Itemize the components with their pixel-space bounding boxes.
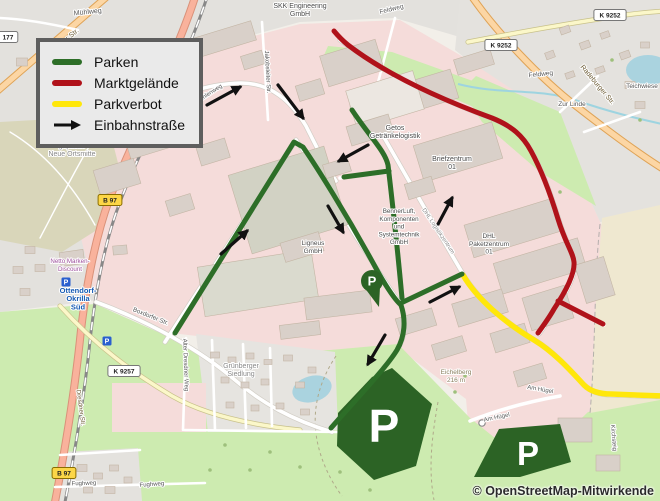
- svg-text:B 97: B 97: [103, 198, 117, 205]
- one-way-arrow-icon: [52, 118, 82, 132]
- svg-text:177: 177: [3, 35, 14, 42]
- svg-text:Teichwiese: Teichwiese: [626, 83, 658, 90]
- svg-text:K 9257: K 9257: [114, 369, 135, 376]
- svg-text:K 9252: K 9252: [491, 43, 512, 50]
- legend-row-parken: Parken: [52, 51, 185, 72]
- legend-row-parkverbot: Parkverbot: [52, 93, 185, 114]
- map-screenshot: PP PPP 177K 9252K 9252K 9257B 97B 97SKK …: [0, 0, 660, 501]
- svg-text:LigneusGmbH: LigneusGmbH: [302, 240, 326, 255]
- legend: Parken Marktgelände Parkverbot Einbahnst…: [36, 38, 203, 148]
- legend-row-marktgelaende: Marktgelände: [52, 72, 185, 93]
- legend-label-parkverbot: Parkverbot: [94, 96, 162, 112]
- legend-row-einbahnstrasse: Einbahnstraße: [52, 114, 185, 135]
- svg-text:P: P: [369, 400, 400, 452]
- osm-attribution: © OpenStreetMap-Mitwirkende: [473, 484, 654, 498]
- svg-text:P: P: [105, 339, 110, 346]
- svg-text:P: P: [368, 274, 377, 289]
- parkverbot-line-swatch: [52, 101, 82, 107]
- legend-label-einbahnstrasse: Einbahnstraße: [94, 117, 185, 133]
- svg-text:GrünbergerSiedlung: GrünbergerSiedlung: [223, 363, 259, 378]
- svg-text:B 97: B 97: [57, 471, 71, 478]
- legend-label-parken: Parken: [94, 54, 138, 70]
- svg-text:P: P: [517, 435, 539, 472]
- svg-text:K 9252: K 9252: [600, 13, 621, 20]
- legend-label-marktgelaende: Marktgelände: [94, 75, 179, 91]
- svg-text:Fughweg: Fughweg: [72, 481, 97, 488]
- parken-line-swatch: [52, 59, 82, 65]
- marktgelaende-line-swatch: [52, 80, 82, 86]
- svg-text:Zur Linde: Zur Linde: [558, 101, 586, 108]
